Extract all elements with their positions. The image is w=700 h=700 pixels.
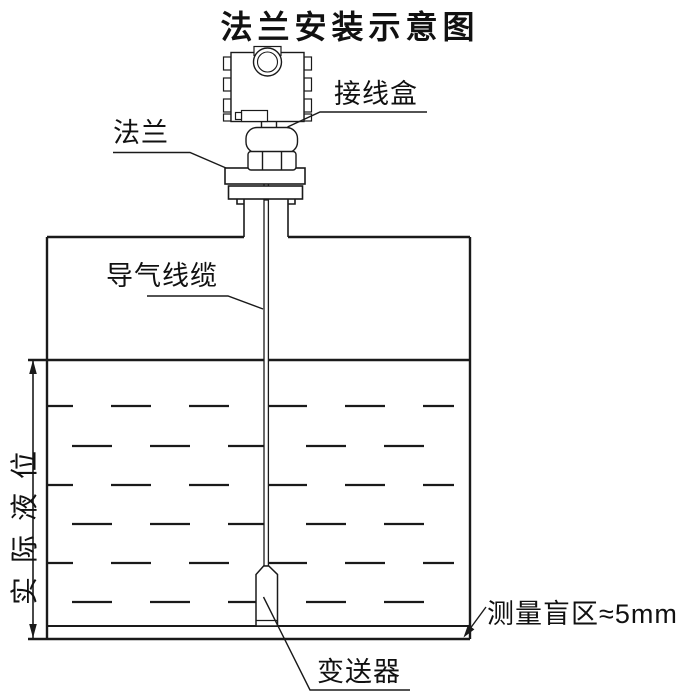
flange-installation-diagram: 法兰安装示意图 接线盒 法兰 导气线缆 实际液位 测量盲区≈5mm 变送器 bbox=[0, 0, 700, 700]
transmitter-label: 变送器 bbox=[317, 658, 401, 686]
actual-level-label: 实际液位 bbox=[3, 426, 31, 616]
transmitter-head bbox=[224, 47, 312, 171]
housing-ribs-left bbox=[224, 57, 232, 121]
blind-zone-label: 测量盲区≈5mm bbox=[487, 600, 678, 628]
air-cable-leader bbox=[147, 296, 263, 309]
flange-plates bbox=[225, 168, 305, 199]
hex-nut bbox=[248, 152, 296, 171]
flange-label: 法兰 bbox=[113, 119, 169, 147]
housing-ribs-right bbox=[304, 57, 312, 121]
junction-box-label: 接线盒 bbox=[334, 80, 418, 108]
liquid-dashes bbox=[48, 406, 454, 602]
air-cable-label: 导气线缆 bbox=[106, 262, 218, 290]
blind-zone-arrow bbox=[464, 607, 487, 638]
diagram-title: 法兰安装示意图 bbox=[0, 2, 700, 48]
elbow-capsule bbox=[246, 128, 298, 154]
sight-glass bbox=[254, 47, 282, 77]
cable-entry-port bbox=[236, 111, 268, 122]
flange-leader bbox=[113, 153, 226, 169]
tank-outline bbox=[28, 237, 470, 639]
air-cable-line bbox=[264, 184, 268, 566]
